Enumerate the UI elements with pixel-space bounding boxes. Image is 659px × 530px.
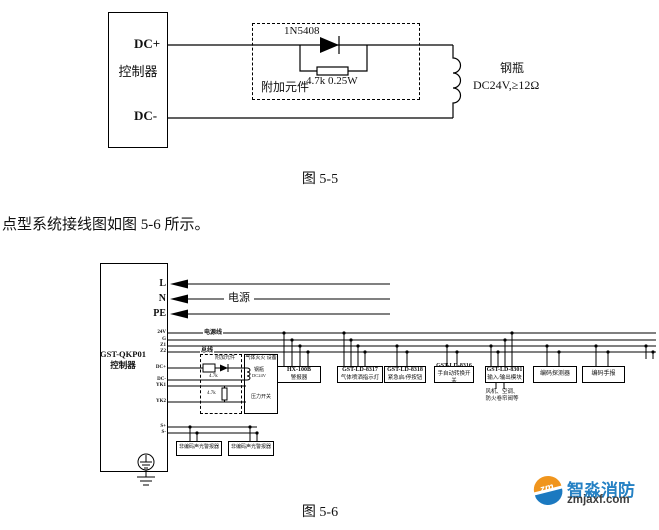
device-name: 输入/输出模块	[487, 375, 522, 382]
fig55-terminal-dc-plus: DC+	[134, 37, 160, 50]
bus-line-tag: 总线	[200, 348, 214, 354]
fig55-diode-label: 1N5408	[284, 26, 319, 37]
bus-lines	[168, 333, 656, 352]
device-model: GST-LD-8301	[487, 367, 523, 375]
fig55-coil-icon	[453, 45, 461, 118]
power-line-tag: 电源线	[203, 330, 223, 336]
sounder-box-2: 非编码声光警报器	[228, 441, 274, 456]
terminal-DC-minus: DC-	[146, 377, 166, 382]
fig56-controller-label: 控制器	[99, 361, 147, 370]
terminal-DC-plus: DC+	[146, 365, 166, 370]
module-note-line2: 防火卷帘阀等	[478, 397, 526, 403]
fig55-load-name: 钢瓶	[500, 62, 524, 74]
device-model: GST-LD-8317	[342, 367, 378, 375]
device-name: 编码手报	[591, 371, 615, 379]
power-source-label: 电源	[228, 293, 250, 304]
fig55-controller-label: 控制器	[110, 65, 166, 78]
terminal-Z2: Z2	[146, 349, 166, 354]
fig55-addon-label: 附加元件	[261, 81, 309, 93]
addon-resistor1-label: 4.7k	[209, 374, 218, 379]
sounder-wires	[168, 427, 257, 441]
fig55-load-spec: DC24V,≥12Ω	[473, 79, 539, 91]
terminal-YK1: YK1	[146, 383, 166, 388]
sounder-box-1: 非编码声光警报器	[176, 441, 222, 456]
terminal-Z1: Z1	[146, 343, 166, 348]
fig55-resistor-label: 4.7k 0.25W	[306, 76, 358, 87]
fig55-controller-box	[108, 12, 168, 148]
fig56-gas-equipment-box	[244, 354, 278, 414]
arrow-PE-icon	[170, 310, 188, 319]
gas-cylinder-spec: DC24V	[252, 374, 266, 379]
device-alarm-bell: HX-100B 警报器	[277, 366, 321, 383]
body-paragraph: 点型系统接线图如图 5-6 所示。	[2, 218, 210, 233]
addon-resistor2-label: 4.7k	[207, 391, 216, 396]
device-model: GST-LD-8318	[387, 367, 423, 375]
device-name: 手自动转换开关	[435, 371, 473, 385]
device-model: HX-100B	[287, 367, 311, 375]
fig56-controller-model: GST-QKP01	[99, 350, 147, 359]
device-coded-detector: 编码探测器	[533, 366, 577, 383]
terminal-24V: 24V	[146, 330, 166, 335]
module-note-line1: 风机、空调、	[478, 390, 526, 396]
fig56-addon-dashed-box	[200, 354, 242, 414]
fig56-addon-label: 附加元件	[208, 356, 242, 361]
arrow-L-icon	[170, 280, 188, 289]
terminal-PE: PE	[140, 309, 166, 319]
sounder-label: 非编码声光警报器	[231, 445, 271, 452]
device-transfer-switch: GST-LD-8316 手自动转换开关	[434, 366, 474, 383]
gas-box-label: 气体灭火 设备	[244, 356, 278, 361]
fig55-terminal-dc-minus: DC-	[134, 109, 157, 122]
terminal-S-plus: S+	[146, 424, 166, 429]
power-input-wires	[187, 284, 390, 314]
terminal-L: L	[140, 279, 166, 289]
terminal-S-minus: S-	[146, 430, 166, 435]
sounder-label: 非编码声光警报器	[179, 445, 219, 452]
device-name: 气体喷洒指示灯	[341, 375, 380, 382]
terminal-G: G	[146, 337, 166, 342]
device-spray-indicator: GST-LD-8317 气体喷洒指示灯	[337, 366, 383, 383]
device-name: 编码探测器	[540, 371, 570, 379]
device-io-module: GST-LD-8301 输入/输出模块	[485, 366, 524, 383]
fig55-caption: 图 5-5	[275, 173, 365, 187]
device-name: 紧急启/停按钮	[388, 375, 423, 382]
terminal-N: N	[140, 294, 166, 304]
device-drop-lines	[284, 333, 653, 366]
device-start-stop-button: GST-LD-8318 紧急启/停按钮	[384, 366, 426, 383]
arrow-N-icon	[170, 295, 188, 304]
terminal-YK2: YK2	[146, 399, 166, 404]
watermark-domain: zmjaxf.com	[567, 494, 630, 506]
pressure-switch-label: 压力开关	[246, 395, 276, 400]
device-name: 警报器	[291, 375, 308, 382]
manual-page: DC+ 控制器 DC- 1N5408 附加元件 4.7k 0.25W 钢瓶 DC…	[0, 0, 659, 530]
fig56-caption: 图 5-6	[275, 506, 365, 520]
device-coded-callpoint: 编码手报	[582, 366, 625, 383]
